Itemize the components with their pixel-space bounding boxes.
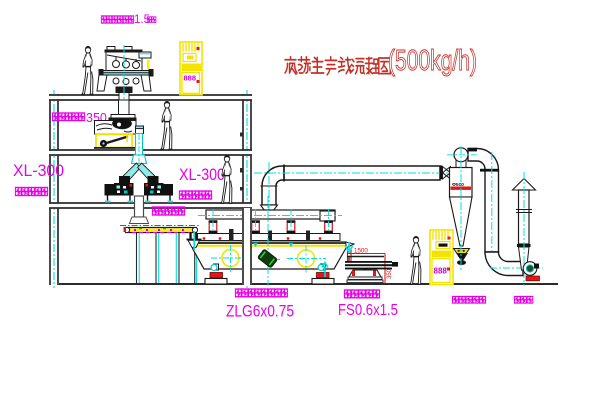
svg-text:ZLG6x0.75: ZLG6x0.75 — [226, 302, 294, 321]
svg-text:XL-300: XL-300 — [13, 161, 64, 180]
svg-text:XL-300: XL-300 — [179, 165, 225, 184]
svg-text:1500: 1500 — [354, 248, 368, 255]
svg-text:(500kg/h): (500kg/h) — [388, 45, 477, 77]
svg-text:FS0.6x1.5: FS0.6x1.5 — [338, 302, 398, 319]
svg-text:350: 350 — [387, 268, 393, 279]
svg-text:888: 888 — [184, 74, 197, 83]
svg-text:888: 888 — [434, 267, 448, 276]
